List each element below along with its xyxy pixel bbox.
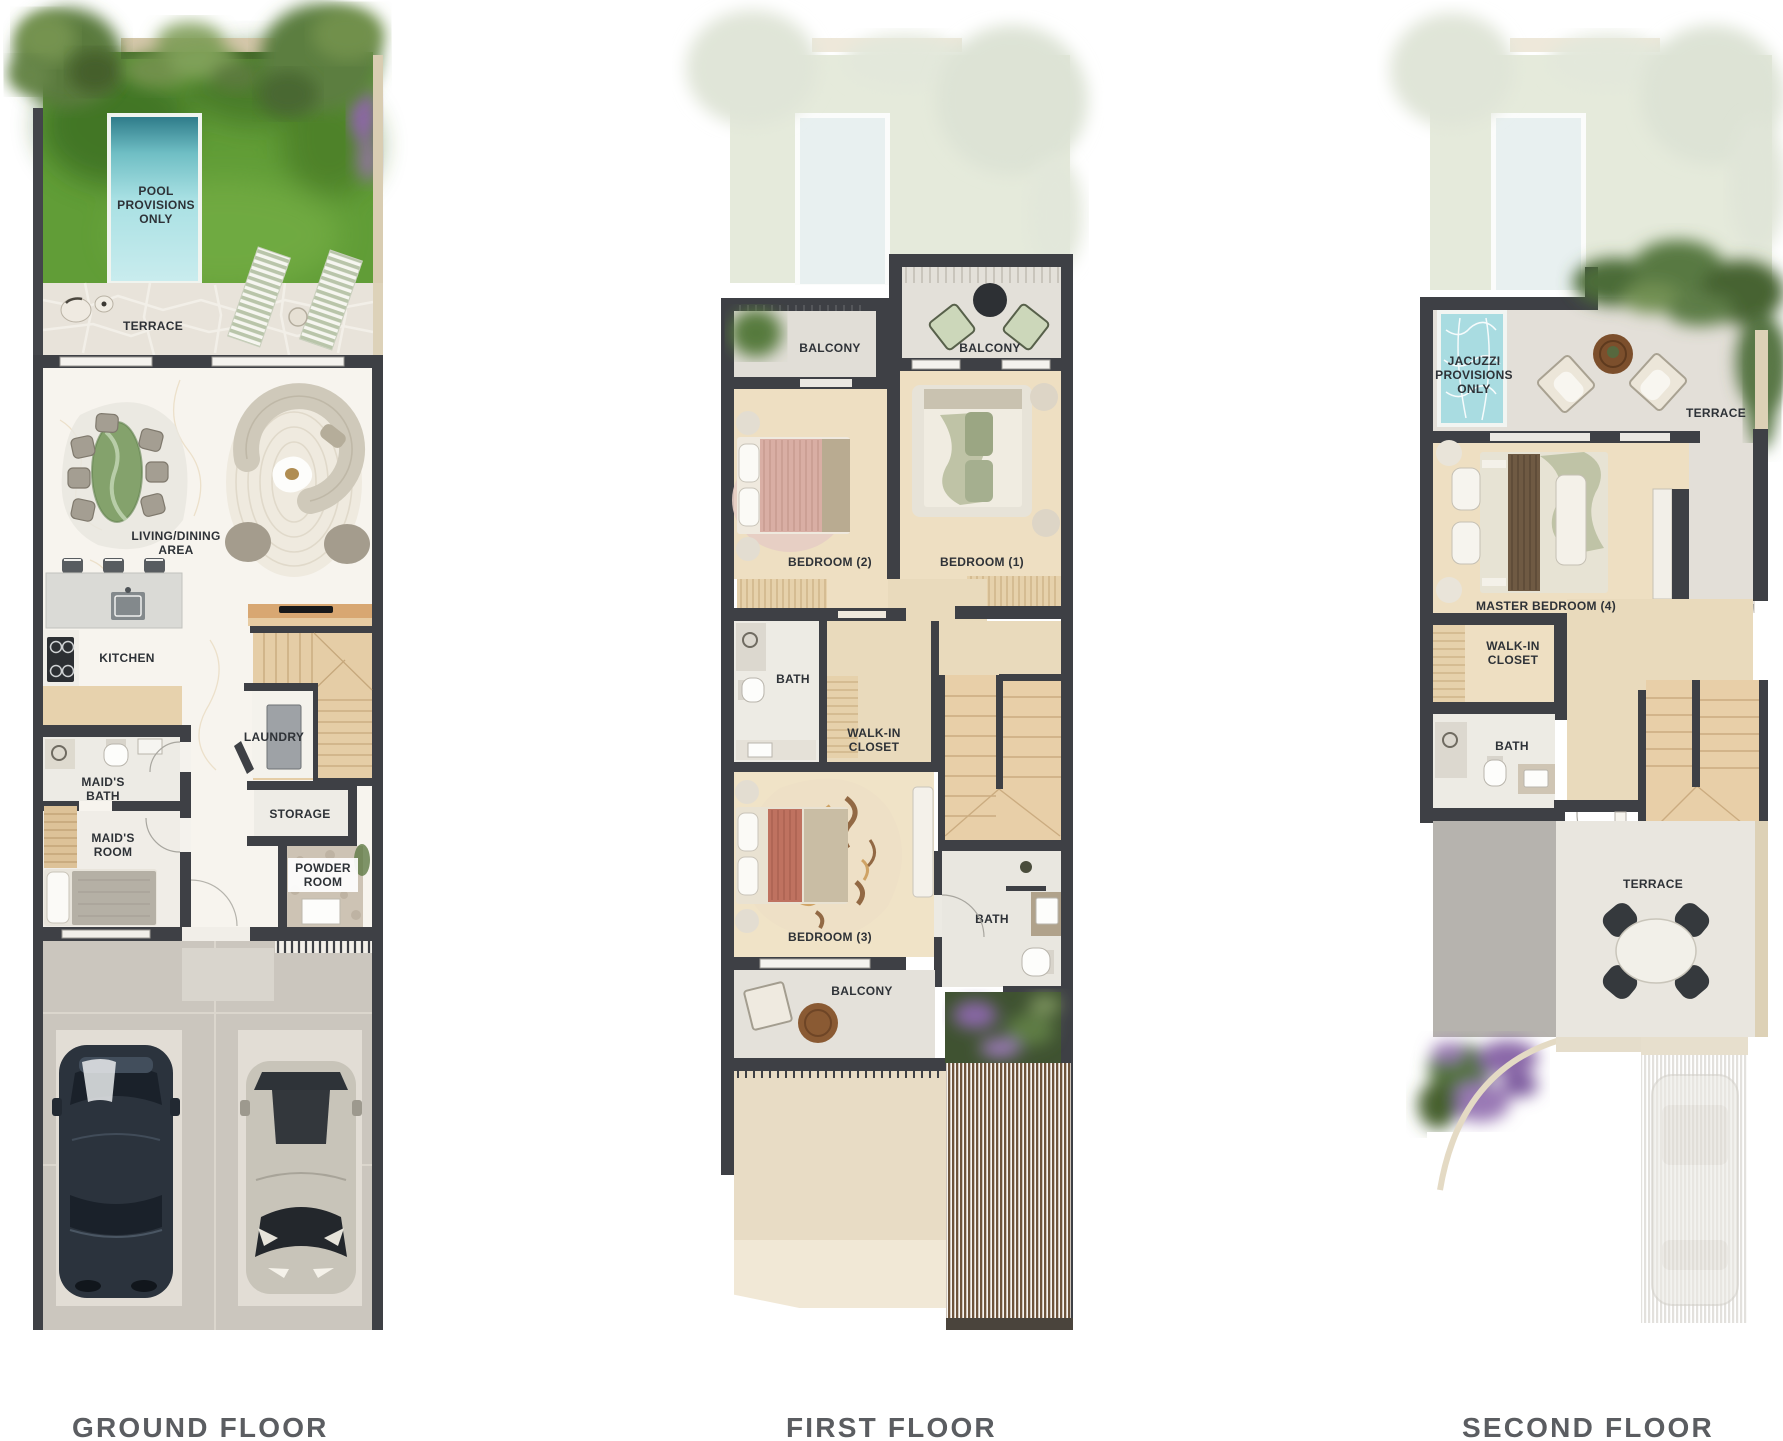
svg-text:BALCONY: BALCONY [799, 341, 860, 355]
svg-text:BALCONY: BALCONY [831, 984, 892, 998]
svg-text:CLOSET: CLOSET [1488, 653, 1539, 667]
svg-text:BEDROOM (3): BEDROOM (3) [788, 930, 872, 944]
svg-text:WALK-IN: WALK-IN [1486, 639, 1539, 653]
svg-text:JACUZZI: JACUZZI [1448, 354, 1501, 368]
svg-text:SECOND FLOOR: SECOND FLOOR [1462, 1412, 1714, 1441]
svg-text:TERRACE: TERRACE [1686, 406, 1746, 420]
svg-text:BATH: BATH [86, 789, 120, 803]
svg-text:ONLY: ONLY [139, 212, 172, 226]
svg-text:KITCHEN: KITCHEN [99, 651, 154, 665]
svg-text:BATH: BATH [776, 672, 810, 686]
svg-text:MASTER BEDROOM (4): MASTER BEDROOM (4) [1476, 599, 1616, 613]
svg-text:POOL: POOL [138, 184, 173, 198]
svg-text:BATH: BATH [1495, 739, 1529, 753]
svg-text:FIRST FLOOR: FIRST FLOOR [786, 1412, 997, 1441]
svg-text:TERRACE: TERRACE [1623, 877, 1683, 891]
svg-text:POWDER: POWDER [295, 861, 351, 875]
svg-text:GROUND FLOOR: GROUND FLOOR [72, 1412, 329, 1441]
svg-text:WALK-IN: WALK-IN [847, 726, 900, 740]
svg-text:PROVISIONS: PROVISIONS [117, 198, 195, 212]
svg-text:BEDROOM (2): BEDROOM (2) [788, 555, 872, 569]
svg-text:CLOSET: CLOSET [849, 740, 900, 754]
svg-text:STORAGE: STORAGE [269, 807, 330, 821]
svg-text:MAID'S: MAID'S [91, 831, 134, 845]
svg-text:ROOM: ROOM [304, 875, 343, 889]
svg-text:ROOM: ROOM [94, 845, 133, 859]
svg-text:MAID'S: MAID'S [81, 775, 124, 789]
svg-text:PROVISIONS: PROVISIONS [1435, 368, 1513, 382]
svg-text:ONLY: ONLY [1457, 382, 1490, 396]
svg-text:AREA: AREA [158, 543, 193, 557]
svg-text:TERRACE: TERRACE [123, 319, 183, 333]
svg-text:LIVING/DINING: LIVING/DINING [131, 529, 220, 543]
svg-text:BALCONY: BALCONY [959, 341, 1020, 355]
svg-text:BEDROOM (1): BEDROOM (1) [940, 555, 1024, 569]
svg-text:LAUNDRY: LAUNDRY [244, 730, 304, 744]
